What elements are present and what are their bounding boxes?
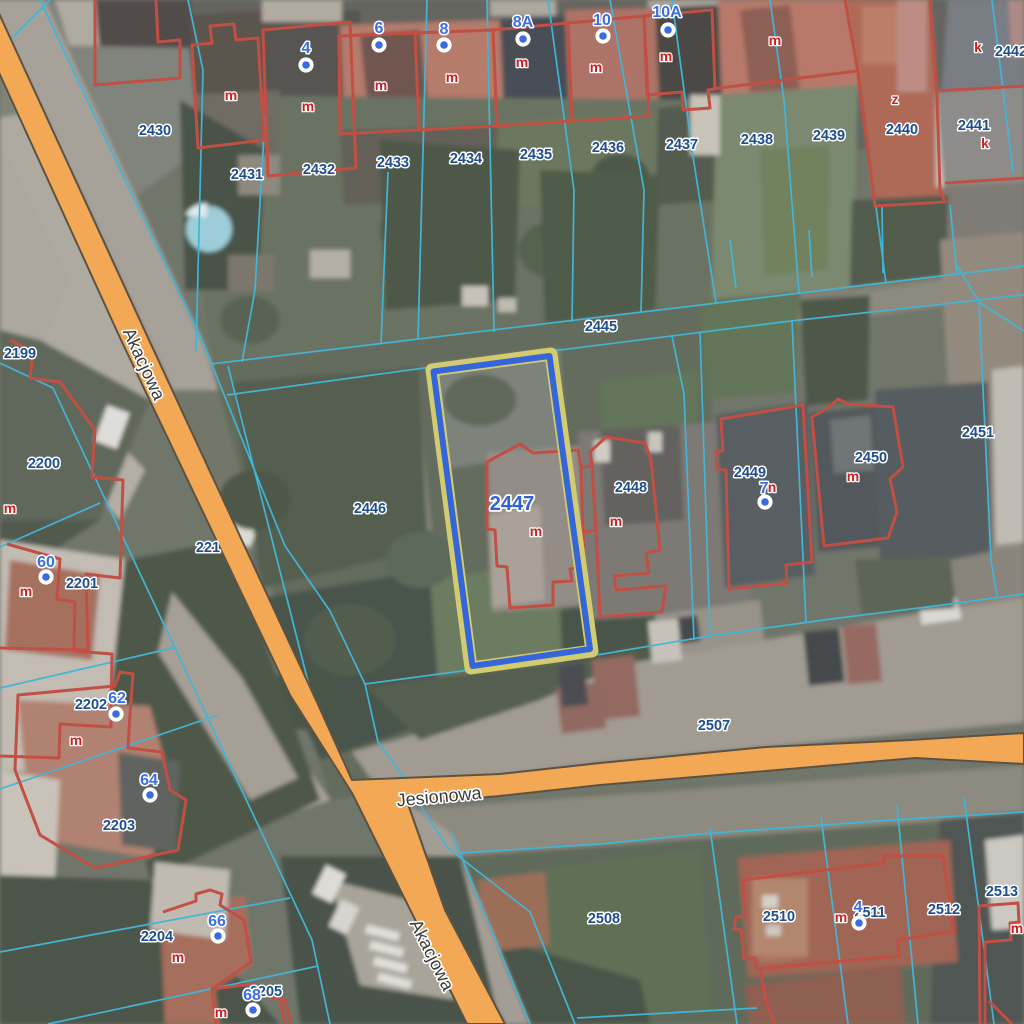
svg-text:k: k xyxy=(974,39,982,55)
svg-text:m: m xyxy=(446,69,458,85)
svg-text:m: m xyxy=(20,583,32,599)
svg-text:2510: 2510 xyxy=(763,909,795,925)
svg-text:2430: 2430 xyxy=(139,123,171,139)
svg-text:m: m xyxy=(590,59,602,75)
svg-text:4: 4 xyxy=(302,40,311,57)
svg-text:n: n xyxy=(768,479,777,495)
svg-text:7: 7 xyxy=(760,480,769,497)
svg-text:2507: 2507 xyxy=(698,718,730,734)
svg-text:2512: 2512 xyxy=(928,902,960,918)
svg-text:2433: 2433 xyxy=(377,155,409,171)
svg-text:10A: 10A xyxy=(652,4,682,21)
svg-text:m: m xyxy=(4,500,16,516)
svg-text:64: 64 xyxy=(140,772,158,789)
svg-text:8A: 8A xyxy=(513,14,534,31)
svg-text:62: 62 xyxy=(108,690,126,707)
svg-text:2440: 2440 xyxy=(886,122,918,138)
svg-text:2451: 2451 xyxy=(962,425,994,441)
svg-text:221: 221 xyxy=(196,540,220,556)
svg-text:k: k xyxy=(981,135,989,151)
svg-text:m: m xyxy=(1011,920,1023,936)
svg-text:2200: 2200 xyxy=(28,456,60,472)
svg-text:m: m xyxy=(302,98,314,114)
svg-text:10: 10 xyxy=(593,12,611,29)
svg-text:2438: 2438 xyxy=(741,132,773,148)
svg-text:z: z xyxy=(892,91,899,107)
svg-text:68: 68 xyxy=(243,987,261,1004)
svg-text:2431: 2431 xyxy=(231,167,263,183)
svg-text:m: m xyxy=(610,513,622,529)
svg-text:2441: 2441 xyxy=(958,118,990,134)
svg-text:2449: 2449 xyxy=(734,465,766,481)
svg-text:m: m xyxy=(769,32,781,48)
svg-text:2204: 2204 xyxy=(141,929,173,945)
svg-text:2439: 2439 xyxy=(813,128,845,144)
svg-text:2447: 2447 xyxy=(490,493,535,515)
svg-text:2201: 2201 xyxy=(66,576,98,592)
svg-text:2448: 2448 xyxy=(615,480,647,496)
svg-text:m: m xyxy=(172,949,184,965)
svg-text:2437: 2437 xyxy=(666,137,698,153)
svg-text:6: 6 xyxy=(375,20,384,37)
svg-text:2434: 2434 xyxy=(450,151,482,167)
svg-text:m: m xyxy=(375,77,387,93)
svg-text:2445: 2445 xyxy=(585,319,617,335)
svg-text:2513: 2513 xyxy=(986,884,1018,900)
svg-text:8: 8 xyxy=(440,21,449,38)
svg-text:4: 4 xyxy=(854,899,863,916)
svg-text:2450: 2450 xyxy=(855,450,887,466)
svg-text:m: m xyxy=(835,909,847,925)
svg-text:m: m xyxy=(530,523,542,539)
svg-text:2199: 2199 xyxy=(4,346,36,362)
svg-text:m: m xyxy=(847,468,859,484)
svg-text:m: m xyxy=(215,1004,227,1020)
svg-text:2432: 2432 xyxy=(303,162,335,178)
svg-text:2203: 2203 xyxy=(103,818,135,834)
svg-text:2446: 2446 xyxy=(354,501,386,517)
svg-text:m: m xyxy=(516,54,528,70)
svg-text:2202: 2202 xyxy=(75,697,107,713)
svg-text:2508: 2508 xyxy=(588,911,620,927)
svg-text:2436: 2436 xyxy=(592,140,624,156)
svg-text:2442: 2442 xyxy=(995,44,1024,60)
svg-text:60: 60 xyxy=(37,554,55,571)
svg-text:m: m xyxy=(70,732,82,748)
svg-text:2435: 2435 xyxy=(520,147,552,163)
svg-text:66: 66 xyxy=(208,913,226,930)
svg-text:m: m xyxy=(660,48,672,64)
svg-text:m: m xyxy=(225,87,237,103)
